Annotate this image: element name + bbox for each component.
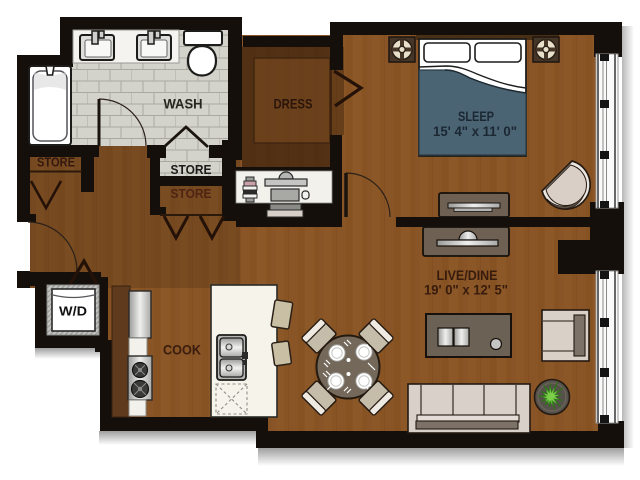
svg-text:15' 4" x 11' 0": 15' 4" x 11' 0" xyxy=(433,123,517,139)
svg-text:W/D: W/D xyxy=(59,305,87,319)
svg-text:STORE: STORE xyxy=(171,162,212,177)
svg-text:SLEEP: SLEEP xyxy=(458,108,494,124)
svg-text:COOK: COOK xyxy=(163,342,201,358)
svg-text:STORE: STORE xyxy=(37,155,75,170)
svg-text:WASH: WASH xyxy=(164,96,203,112)
svg-text:DRESS: DRESS xyxy=(274,96,313,112)
svg-text:19' 0" x 12' 5": 19' 0" x 12' 5" xyxy=(424,282,508,298)
svg-text:STORE: STORE xyxy=(171,186,212,201)
